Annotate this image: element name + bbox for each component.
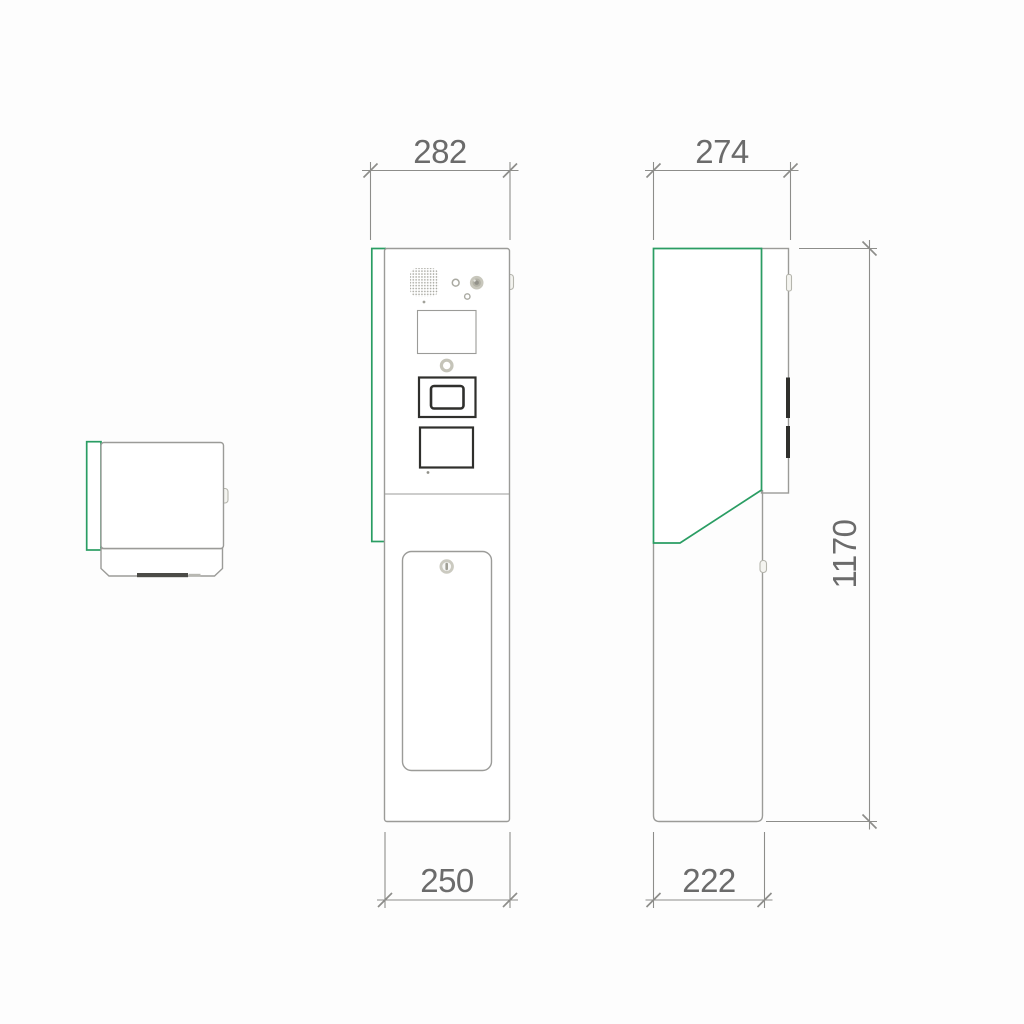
front-view-body [385,249,510,822]
dim-label-height: 1170 [826,519,863,588]
drawing-page: 282 274 250 222 [0,0,1024,1024]
dimension-front-base-width: 250 [377,832,518,908]
top-view-cover-edge [87,442,101,550]
side-view [654,249,792,822]
technical-drawing-canvas: 282 274 250 222 [0,0,1024,1024]
door-lock-icon [440,559,454,573]
sensor-hole-icon [465,294,470,299]
side-view-hinge-upper [786,378,790,419]
top-view [87,442,228,578]
microphone-hole-icon [423,301,426,304]
side-view-rear-plate [762,249,789,494]
speaker-grille-icon [410,268,439,297]
top-view-slot-end [189,574,201,577]
top-view-slot [137,573,188,577]
dim-label-front-base-width: 250 [420,862,474,899]
dimension-front-top-width: 282 [362,133,519,240]
dim-label-side-top-depth: 274 [695,133,749,170]
dim-label-front-top-width: 282 [413,133,467,170]
front-view-cover-flange [372,249,386,542]
dimension-side-top-depth: 274 [645,133,799,240]
side-view-rear-tab [787,275,792,292]
indicator-led-icon [452,279,459,286]
screw-dot-icon [427,471,430,474]
dim-label-side-base-depth: 222 [682,862,736,899]
side-view-cover-profile [654,249,762,544]
camera-icon [470,276,484,290]
side-view-latch-tab [760,561,767,573]
top-view-body [101,443,224,549]
top-view-rear-section [101,549,223,577]
front-view [372,249,514,822]
side-view-hinge-lower [786,426,790,458]
dimension-side-base-depth: 222 [646,832,773,908]
